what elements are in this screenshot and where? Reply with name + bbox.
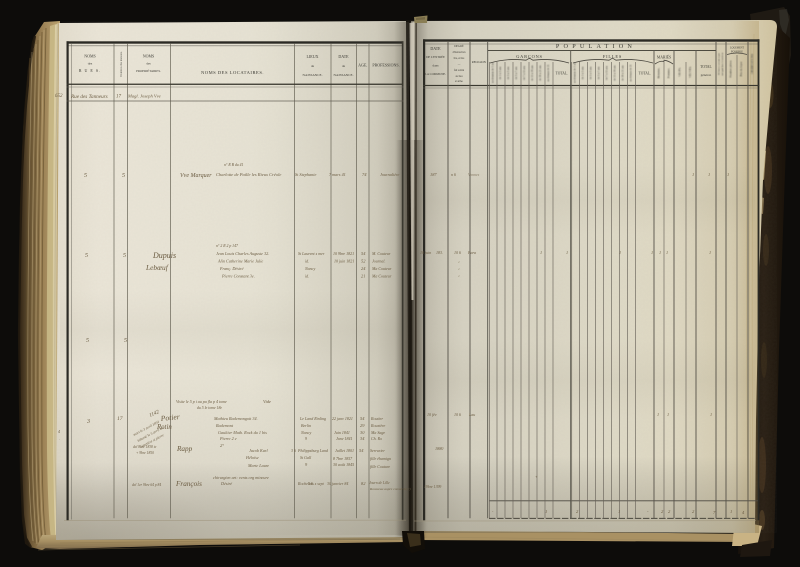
svg-text:2: 2 xyxy=(458,267,460,271)
svg-text:de 18 à 21 ans: de 18 à 21 ans xyxy=(539,65,542,80)
svg-text:de 13 à 18 ans: de 13 à 18 ans xyxy=(614,65,617,80)
svg-text:François: François xyxy=(175,480,202,488)
svg-text:Lebœuf: Lebœuf xyxy=(145,263,169,272)
svg-text:de 1 à 3 ans: de 1 à 3 ans xyxy=(499,67,502,80)
svg-text:1: 1 xyxy=(618,509,620,514)
svg-text:2: 2 xyxy=(458,260,460,264)
svg-text:fille éhamign: fille éhamign xyxy=(370,456,391,461)
svg-text:St Laurent s mer: St Laurent s mer xyxy=(298,251,325,256)
svg-text:Héloïse: Héloïse xyxy=(245,455,259,460)
svg-text:NOMS DES LOCATAIRES.: NOMS DES LOCATAIRES. xyxy=(201,70,264,75)
svg-text:POSSIBLE: POSSIBLE xyxy=(731,51,743,54)
svg-text:Rotin: Rotin xyxy=(156,424,172,431)
svg-text:n° R B du 41: n° R B du 41 xyxy=(224,163,244,167)
svg-text:au-dessus de 21: au-dessus de 21 xyxy=(630,64,633,82)
svg-text:d'instruction: d'instruction xyxy=(453,51,467,54)
svg-text:Rochelais s sept: Rochelais s sept xyxy=(297,481,325,486)
svg-text:MARIÉS: MARIÉS xyxy=(657,55,671,60)
svg-text:del 1er 9bre 64 p 84: del 1er 9bre 64 p 84 xyxy=(132,483,161,487)
svg-text:Serrurier: Serrurier xyxy=(370,448,385,453)
svg-text:8 7bre 1857: 8 7bre 1857 xyxy=(333,456,353,461)
svg-text:1: 1 xyxy=(619,250,621,255)
svg-text:1: 1 xyxy=(666,250,668,255)
svg-text:Pierre Constant 3e.: Pierre Constant 3e. xyxy=(221,274,255,279)
svg-text:Ch. Ro: Ch. Ro xyxy=(371,436,382,441)
svg-text:Journ de Lille: Journ de Lille xyxy=(369,481,390,485)
svg-text:Juin 1841: Juin 1841 xyxy=(334,430,350,435)
svg-text:AGE.: AGE. xyxy=(358,63,367,68)
svg-text:VEUFS.: VEUFS. xyxy=(679,67,682,77)
svg-text:des: des xyxy=(88,62,93,66)
svg-text:Philippsburg Land: Philippsburg Land xyxy=(297,448,329,453)
svg-text:4: 4 xyxy=(58,429,60,434)
svg-text:17: 17 xyxy=(117,416,123,422)
svg-text:7 mars 41: 7 mars 41 xyxy=(329,172,346,177)
svg-text:+: + xyxy=(535,474,538,479)
svg-text:Jacob Karl: Jacob Karl xyxy=(249,448,269,453)
svg-text:Ma Sage: Ma Sage xyxy=(370,430,385,435)
svg-text:10 6: 10 6 xyxy=(454,412,461,417)
svg-text:fille Couture: fille Couture xyxy=(370,464,390,469)
svg-text:del 8bre 1838 te: del 8bre 1838 te xyxy=(133,445,157,449)
svg-text:VEUVES.: VEUVES. xyxy=(689,66,692,78)
svg-text:TOTAL.: TOTAL. xyxy=(639,72,651,76)
svg-text:Alin Catherine Marie Julie: Alin Catherine Marie Julie xyxy=(217,259,263,264)
svg-text:et arme.: et arme. xyxy=(455,80,464,83)
svg-text:3: 3 xyxy=(86,419,90,425)
svg-text:21: 21 xyxy=(361,274,365,279)
svg-text:1: 1 xyxy=(657,412,659,417)
svg-text:M. Couteur: M. Couteur xyxy=(371,251,391,256)
svg-text:n 6: n 6 xyxy=(451,172,456,177)
svg-text:de 7 à 13 ans: de 7 à 13 ans xyxy=(523,66,526,80)
svg-text:Gaultier Math. Rock du 1 bis: Gaultier Math. Rock du 1 bis xyxy=(218,430,267,435)
svg-text:9: 9 xyxy=(305,436,307,441)
svg-text:1: 1 xyxy=(692,172,694,177)
svg-text:652: 652 xyxy=(55,94,63,99)
svg-text:FILLES: FILLES xyxy=(603,54,622,59)
svg-text:R U E S.: R U E S. xyxy=(79,68,101,73)
svg-text:22 janv 1821: 22 janv 1821 xyxy=(332,416,353,421)
svg-text:3 6: 3 6 xyxy=(291,448,296,453)
svg-text:Rapp: Rapp xyxy=(176,445,193,453)
svg-text:—: — xyxy=(457,63,461,66)
svg-text:RELIGION: RELIGION xyxy=(472,60,487,64)
svg-text:10 juin 1821: 10 juin 1821 xyxy=(334,259,354,264)
svg-text:1: 1 xyxy=(545,509,547,514)
svg-text:17: 17 xyxy=(116,95,122,100)
svg-text:1: 1 xyxy=(566,250,568,255)
svg-text:Pierre 2 e: Pierre 2 e xyxy=(219,436,237,441)
svg-text:LA COMMUNE.: LA COMMUNE. xyxy=(425,72,446,76)
svg-text:Vide: Vide xyxy=(263,399,271,404)
svg-text:DATE: DATE xyxy=(430,46,441,51)
svg-text:TOTAL.: TOTAL. xyxy=(556,72,568,76)
svg-text:chirurgien art: vents org mine: chirurgien art: vents org mineure xyxy=(213,475,269,480)
svg-text:Le Land Rinling: Le Land Rinling xyxy=(299,416,326,421)
svg-text:de 1 à 3 ans: de 1 à 3 ans xyxy=(582,67,585,80)
svg-text:5: 5 xyxy=(85,253,88,259)
svg-text:Rousseau aupre consul de(?): Rousseau aupre consul de(?) xyxy=(369,487,411,491)
svg-text:au-dessus de 21: au-dessus de 21 xyxy=(547,64,550,82)
svg-text:Franç. Désiré: Franç. Désiré xyxy=(219,266,245,271)
svg-text:au lieu: au lieu xyxy=(456,75,464,78)
svg-text:PROFESSIONS.: PROFESSIONS. xyxy=(372,63,399,68)
svg-text:Routier: Routier xyxy=(370,416,383,421)
svg-text:général.: général. xyxy=(701,73,712,77)
svg-text:2: 2 xyxy=(458,274,460,278)
svg-text:5: 5 xyxy=(122,173,125,179)
svg-text:OBSERVATIONS: OBSERVATIONS xyxy=(751,53,754,74)
svg-text:Hommes.: Hommes. xyxy=(658,67,661,78)
svg-text:n° 2 R 2 p 147: n° 2 R 2 p 147 xyxy=(216,244,239,248)
svg-text:Prix du loyer: Prix du loyer xyxy=(740,62,743,77)
svg-text:navigant hors le territoire: navigant hors le territoire xyxy=(721,52,724,75)
svg-text:NAISSANCE.: NAISSANCE. xyxy=(303,73,323,77)
svg-text:Femmes.: Femmes. xyxy=(668,68,671,78)
svg-text:GARÇONS: GARÇONS xyxy=(516,54,543,59)
svg-text:St Stephanie: St Stephanie xyxy=(295,172,316,177)
svg-text:1: 1 xyxy=(659,250,661,255)
svg-text:de 7 à 13 ans: de 7 à 13 ans xyxy=(606,66,609,80)
svg-text:Berlin: Berlin xyxy=(301,423,311,428)
svg-text:5: 5 xyxy=(84,173,87,179)
svg-text:Visite le 5 p i au pa fla p 4: Visite le 5 p i au pa fla p 4 tome xyxy=(176,399,227,404)
svg-text:19bre 1399: 19bre 1399 xyxy=(424,485,441,489)
svg-text:Nancy: Nancy xyxy=(304,266,315,271)
svg-text:Juillet 1801: Juillet 1801 xyxy=(335,448,354,453)
svg-text:Lau: Lau xyxy=(468,412,475,417)
svg-text:Janv 1841: Janv 1841 xyxy=(336,436,353,441)
svg-text:Rademont: Rademont xyxy=(215,423,234,428)
svg-text:1: 1 xyxy=(667,412,669,417)
svg-text:30 août 1845: 30 août 1845 xyxy=(333,462,354,467)
svg-text:Nombre pièces: Nombre pièces xyxy=(730,61,733,78)
svg-text:Rouxière: Rouxière xyxy=(370,423,386,428)
svg-text:DATE: DATE xyxy=(338,54,349,59)
svg-text:au-dessous de 1 an: au-dessous de 1 an xyxy=(492,62,495,83)
svg-text:fait soldat: fait soldat xyxy=(454,69,465,72)
svg-text:Désiré: Désiré xyxy=(220,481,233,486)
svg-text:Marte Laure: Marte Laure xyxy=(247,463,269,468)
svg-text:LOGEMENT: LOGEMENT xyxy=(730,47,745,50)
svg-text:de 5 à 7 ans: de 5 à 7 ans xyxy=(598,67,601,80)
svg-text:10 juin: 10 juin xyxy=(420,250,431,255)
svg-text:5: 5 xyxy=(124,338,127,344)
svg-text:Journal.: Journal. xyxy=(372,259,385,264)
svg-text:Magl. Joseph Vve: Magl. Joseph Vve xyxy=(127,94,161,99)
svg-text:Mathieu Rademongott 34.: Mathieu Rademongott 34. xyxy=(213,416,258,421)
svg-text:DEGRÉ: DEGRÉ xyxy=(454,45,464,48)
svg-text:74: 74 xyxy=(362,172,367,177)
svg-text:1: 1 xyxy=(710,412,712,417)
svg-text:2°: 2° xyxy=(220,443,224,448)
svg-text:Para: Para xyxy=(467,250,476,255)
svg-text:de: de xyxy=(311,64,315,68)
svg-text:id.: id. xyxy=(305,259,309,264)
svg-text:dans: dans xyxy=(432,64,439,68)
svg-text:187: 187 xyxy=(430,172,437,177)
svg-text:NAISSANCE.: NAISSANCE. xyxy=(334,73,354,77)
svg-text:1: 1 xyxy=(709,250,711,255)
svg-text:Vve Marquer: Vve Marquer xyxy=(180,173,212,179)
svg-text:POPULATION: POPULATION xyxy=(556,43,636,50)
svg-text:5: 5 xyxy=(123,253,126,259)
svg-text:de 13 à 18 ans: de 13 à 18 ans xyxy=(531,65,534,80)
svg-text:NOMS: NOMS xyxy=(84,54,96,59)
svg-text:+ 9bre 1850: + 9bre 1850 xyxy=(136,451,154,455)
svg-text:PROPRIÉTAIRES.: PROPRIÉTAIRES. xyxy=(136,68,161,73)
svg-text:Journalière: Journalière xyxy=(380,172,400,177)
svg-text:de 3 à 5 ans: de 3 à 5 ans xyxy=(590,67,593,80)
svg-text:de 18 à 21 ans: de 18 à 21 ans xyxy=(622,65,625,80)
svg-text:Dupuis: Dupuis xyxy=(152,251,176,260)
svg-text:St Gall: St Gall xyxy=(300,455,312,460)
svg-text:Numéros des maisons.: Numéros des maisons. xyxy=(120,51,123,77)
svg-text:lire, écrire: lire, écrire xyxy=(454,57,466,60)
svg-text:du 5 le tome 18e: du 5 le tome 18e xyxy=(197,406,222,410)
svg-text:de: de xyxy=(342,64,346,68)
svg-text:1: 1 xyxy=(727,172,729,177)
svg-text:Ma Couteur: Ma Couteur xyxy=(371,266,392,271)
svg-text:1: 1 xyxy=(730,509,732,514)
svg-text:1: 1 xyxy=(708,172,710,177)
svg-text:id.: id. xyxy=(305,274,309,279)
svg-text:1880: 1880 xyxy=(435,446,444,451)
svg-text:TOTAL: TOTAL xyxy=(700,65,711,69)
svg-text:DE L'ENTRÉE: DE L'ENTRÉE xyxy=(426,54,445,59)
svg-text:LIEUX: LIEUX xyxy=(307,54,319,59)
svg-text:Militaires servant et par: Militaires servant et par xyxy=(719,53,721,75)
svg-text:10 6: 10 6 xyxy=(454,250,461,255)
svg-text:des: des xyxy=(146,62,151,66)
svg-text:Rue des Tanneurs: Rue des Tanneurs xyxy=(70,94,108,100)
svg-text:Ma Couteur: Ma Couteur xyxy=(371,274,392,279)
svg-text:.: . xyxy=(59,437,60,441)
svg-text:Nancy: Nancy xyxy=(300,430,311,435)
svg-text:Jean Louis Charles Auguste 32: Jean Louis Charles Auguste 32. xyxy=(216,251,269,256)
svg-text:1: 1 xyxy=(651,250,653,255)
svg-text:183.: 183. xyxy=(436,250,443,255)
svg-text:de 3 à 5 ans: de 3 à 5 ans xyxy=(507,67,510,80)
svg-text:Charlotte de Paille les Rieux: Charlotte de Paille les Rieux Créole xyxy=(216,172,281,177)
svg-text:30 janvier 84: 30 janvier 84 xyxy=(327,481,348,486)
svg-text:NOMS: NOMS xyxy=(143,54,155,59)
svg-text:10 9bre 1821: 10 9bre 1821 xyxy=(333,251,354,256)
svg-text:10 fév: 10 fév xyxy=(427,412,437,417)
svg-text:de 5 à 7 ans: de 5 à 7 ans xyxy=(515,67,518,80)
svg-text:1: 1 xyxy=(540,250,542,255)
svg-text:5: 5 xyxy=(86,338,89,344)
svg-text:Vannes: Vannes xyxy=(468,172,480,177)
svg-text:au-dessous de 1 an: au-dessous de 1 an xyxy=(574,62,577,83)
